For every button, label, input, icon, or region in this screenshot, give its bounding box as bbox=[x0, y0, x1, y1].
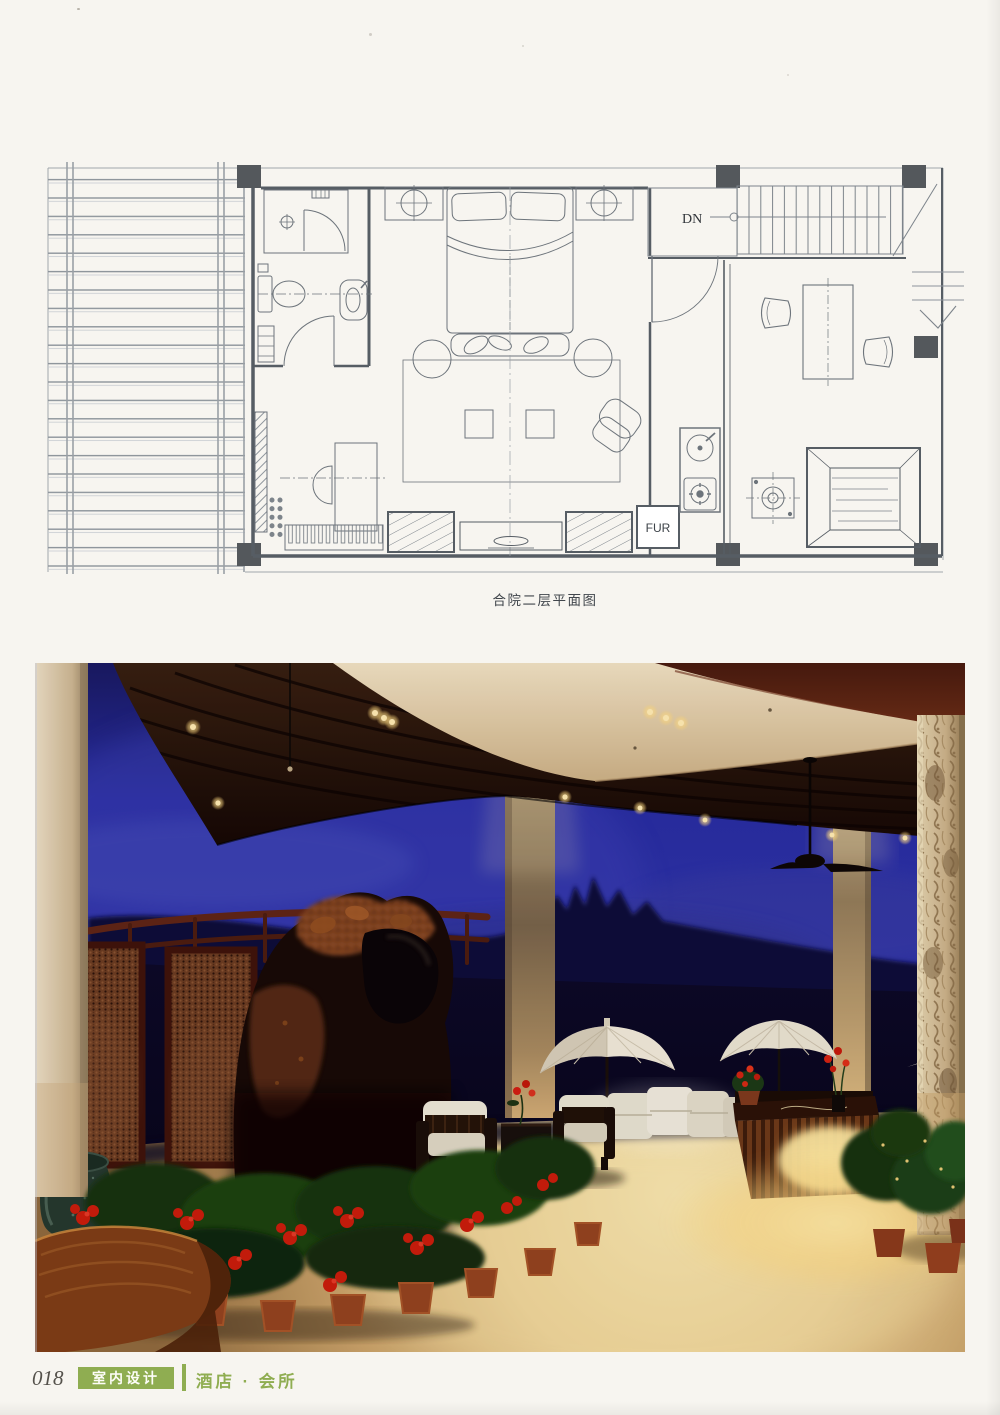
stairs: DN bbox=[648, 184, 964, 328]
fur-closet: FUR bbox=[637, 506, 679, 548]
category-badge: 室内设计 bbox=[78, 1367, 174, 1389]
page-footer: 018 室内设计 酒店 · 会所 bbox=[0, 1360, 1000, 1400]
section-title: 酒店 · 会所 bbox=[196, 1368, 298, 1392]
fur-label: FUR bbox=[646, 521, 671, 535]
bathroom bbox=[258, 190, 372, 366]
shower-fixture bbox=[746, 472, 800, 524]
page-number: 018 bbox=[32, 1366, 64, 1391]
scan-shading-right bbox=[986, 0, 1000, 1415]
scan-speck bbox=[77, 8, 80, 10]
floor-plan-figure: FUR DN bbox=[40, 160, 970, 580]
scan-speck bbox=[787, 74, 789, 76]
photo-tone bbox=[35, 663, 965, 1352]
desk-corner bbox=[255, 412, 385, 550]
trellis-slats bbox=[48, 162, 245, 574]
book-page: { "floor_plan": { "caption": "合院二层平面图", … bbox=[0, 0, 1000, 1415]
bedroom-furniture bbox=[385, 185, 645, 556]
plan-caption: 合院二层平面图 bbox=[455, 589, 635, 609]
lobby-photo-art bbox=[35, 663, 965, 1352]
study-room bbox=[762, 278, 893, 386]
footer-divider bbox=[182, 1364, 186, 1391]
stairs-down-label: DN bbox=[682, 212, 702, 227]
louvered-tub bbox=[807, 448, 920, 547]
lobby-photo bbox=[35, 663, 965, 1352]
scan-speck bbox=[522, 45, 524, 47]
wet-counter bbox=[680, 428, 720, 512]
scan-speck bbox=[369, 33, 372, 36]
scan-shading-bottom bbox=[0, 1401, 1000, 1415]
floor-plan-drawing: FUR DN bbox=[40, 160, 970, 580]
